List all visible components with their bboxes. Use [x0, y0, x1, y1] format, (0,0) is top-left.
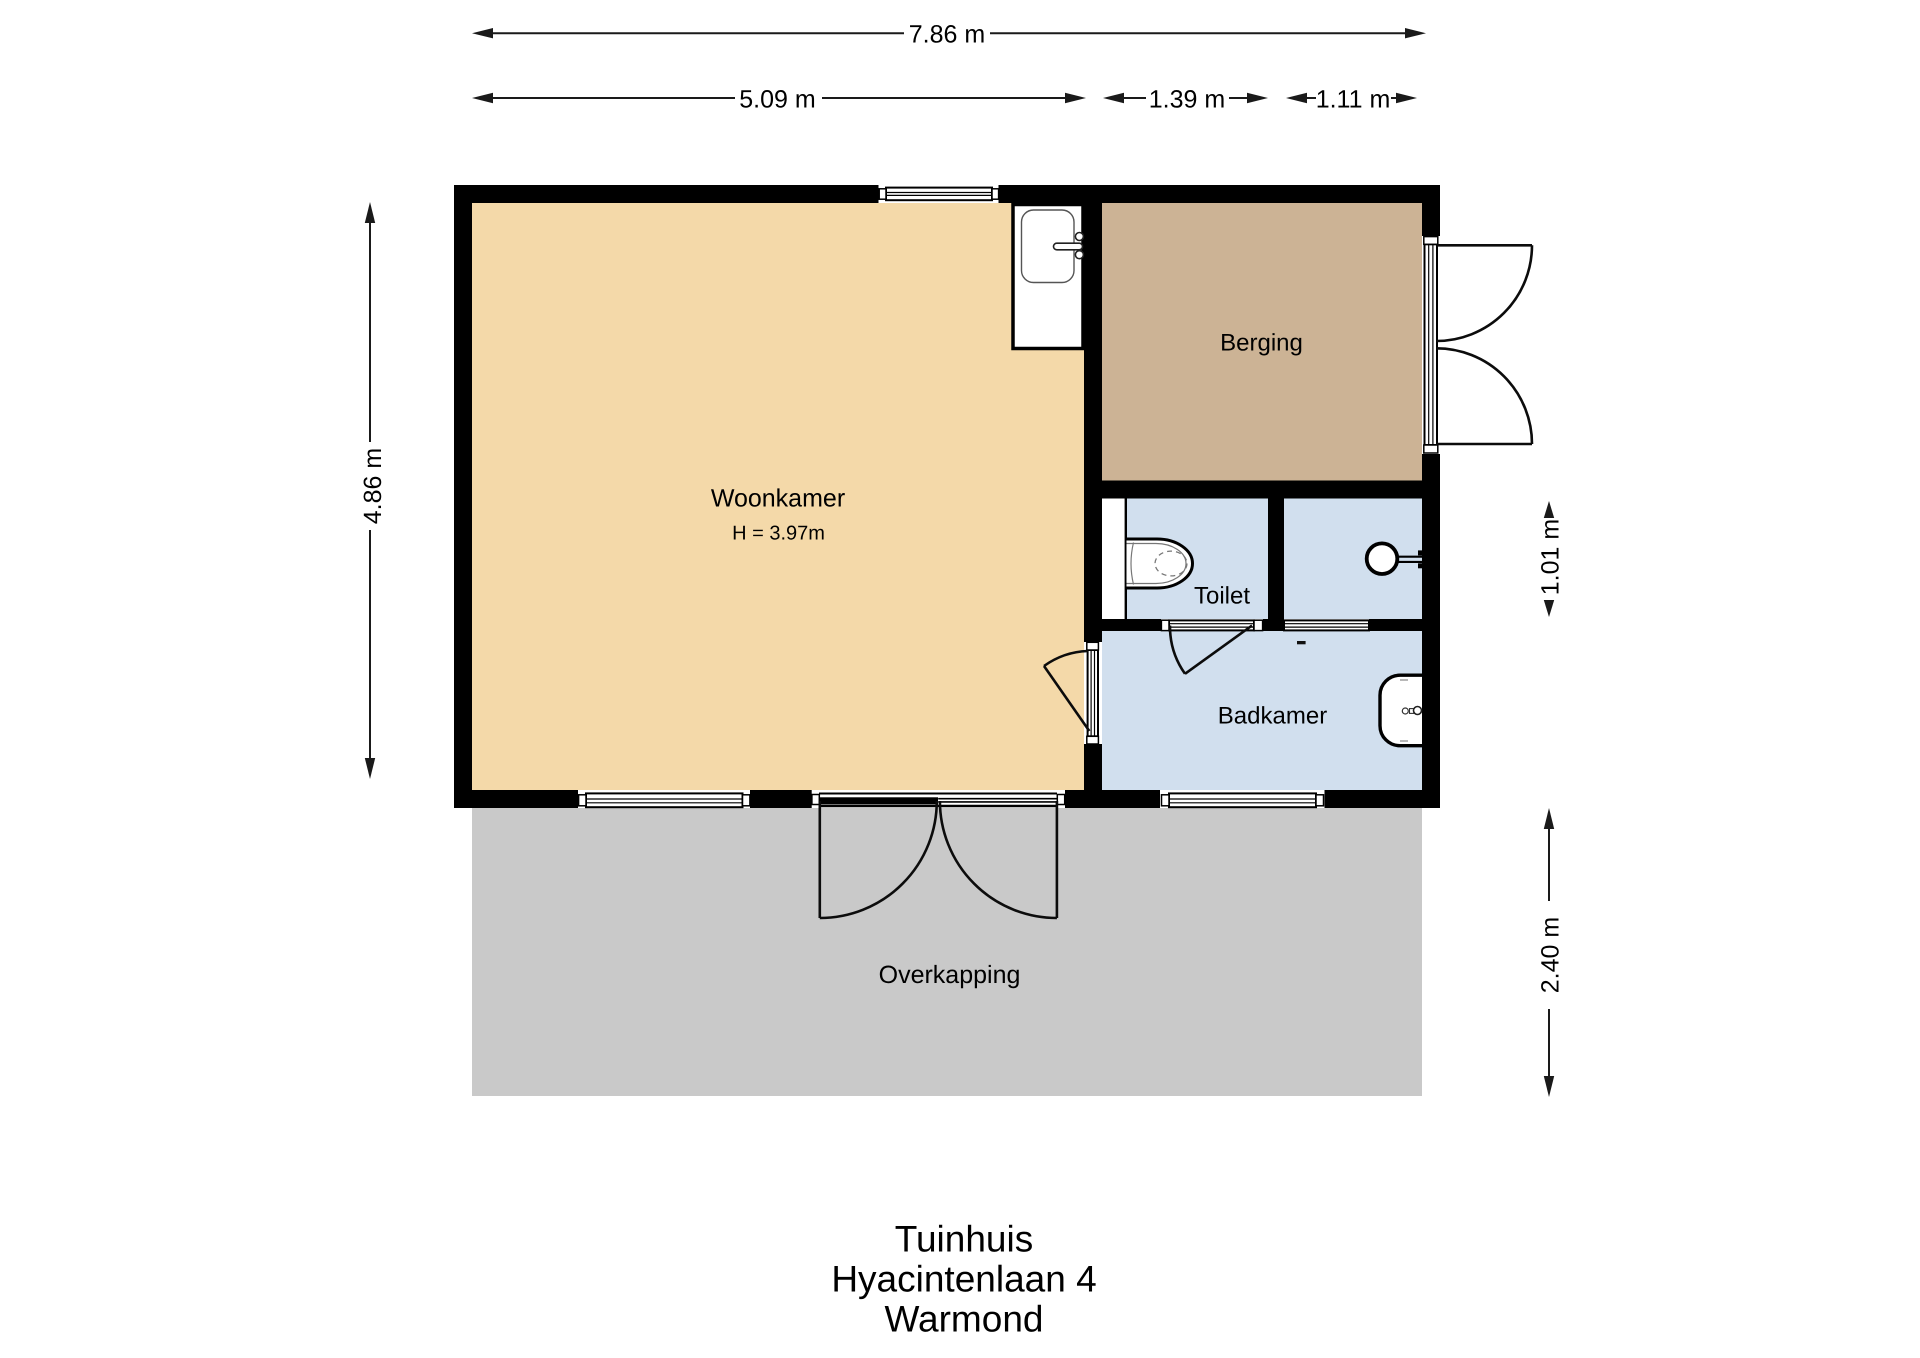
svg-text:Woonkamer: Woonkamer [711, 485, 845, 513]
svg-text:Overkapping: Overkapping [879, 961, 1021, 989]
svg-text:1.01 m: 1.01 m [1536, 519, 1564, 595]
svg-text:Warmond: Warmond [884, 1299, 1043, 1340]
svg-text:7.86 m: 7.86 m [909, 21, 985, 49]
svg-text:Tuinhuis: Tuinhuis [895, 1218, 1033, 1259]
svg-text:Toilet: Toilet [1194, 582, 1250, 609]
svg-text:1.39 m: 1.39 m [1149, 86, 1225, 114]
svg-text:Berging: Berging [1220, 329, 1303, 356]
svg-text:1.11 m: 1.11 m [1316, 86, 1391, 114]
svg-text:2.40 m: 2.40 m [1536, 917, 1564, 993]
svg-text:4.86 m: 4.86 m [359, 448, 387, 524]
svg-text:Badkamer: Badkamer [1218, 703, 1327, 730]
svg-text:5.09 m: 5.09 m [739, 86, 815, 114]
svg-text:Hyacintenlaan 4: Hyacintenlaan 4 [831, 1259, 1096, 1300]
svg-text:H = 3.97m: H = 3.97m [732, 523, 825, 545]
